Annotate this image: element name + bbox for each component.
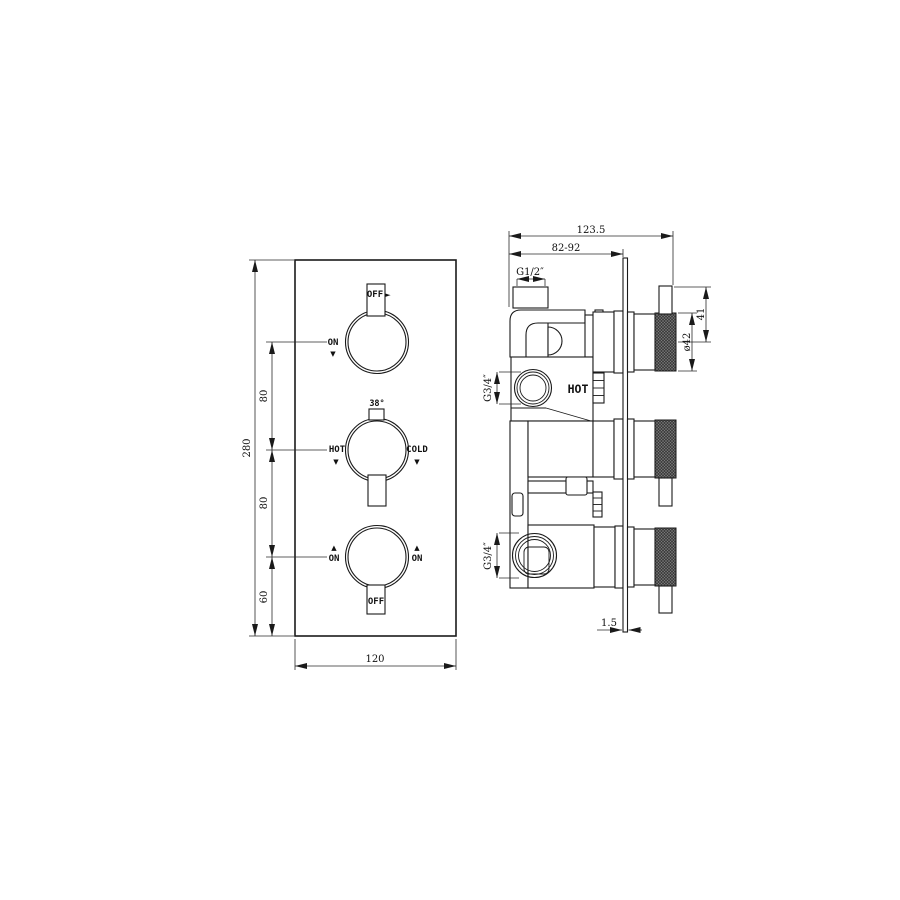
right-triangle-icon: ►: [385, 291, 391, 299]
lever-down: [659, 478, 672, 506]
cold-label: COLD: [406, 445, 428, 455]
knurled-grip: [655, 313, 676, 371]
lever-down: [659, 586, 672, 613]
dim-knob-dia-42: ø42: [682, 333, 693, 352]
knurled-grip: [655, 528, 676, 586]
dim-gap-60-bottom: 60: [259, 591, 270, 604]
knurled-grip: [655, 420, 676, 478]
outlet-thread-top-label: G3/4″: [483, 374, 494, 402]
dim-handle-41: 41: [696, 308, 707, 321]
drawing-canvas: OFF ► ON ▼ 38° HOT ▼ COLD ▼ OFF ▲ ON ▲ O…: [0, 0, 900, 900]
dim-plate-1-5: 1.5: [601, 618, 617, 629]
side-view: HOT: [483, 225, 711, 632]
inlet-port-g12: [513, 287, 548, 308]
knob-middle-handle: [368, 475, 386, 506]
hot-marking: HOT: [568, 382, 589, 396]
faceplate-side: [623, 258, 628, 632]
front-view: OFF ► ON ▼ 38° HOT ▼ COLD ▼ OFF ▲ ON ▲ O…: [242, 260, 456, 670]
inlet-thread-label: G1/2″: [516, 267, 544, 278]
dim-gap-80-top: 80: [259, 390, 270, 403]
side-tab: [512, 493, 523, 516]
lower-valve-block: [528, 525, 594, 588]
knob-middle-side: [628, 419, 677, 506]
cartridge-dome: [548, 327, 562, 355]
middle-valve-block: [528, 421, 593, 477]
temp-38-label: 38°: [369, 399, 384, 409]
knob-top-handle: [367, 284, 385, 316]
lever-up: [659, 286, 672, 314]
knob-bottom-on-right-label: ON: [412, 554, 423, 564]
hot-label: HOT: [329, 445, 346, 455]
dim-height-280: 280: [242, 438, 253, 457]
knob-bottom-off-label: OFF: [368, 597, 384, 607]
knob-top-on-label: ON: [328, 338, 339, 348]
down-triangle-icon: ▼: [414, 458, 420, 466]
knob-bottom-side: [628, 527, 677, 613]
up-triangle-icon: ▲: [331, 544, 337, 552]
knob-middle-tab: [369, 409, 384, 420]
down-triangle-icon: ▼: [333, 458, 339, 466]
outlet-thread-bottom-label: G3/4″: [483, 542, 494, 570]
dim-wall-82-92: 82-92: [552, 243, 581, 254]
ridged-connector-lower: [593, 492, 602, 517]
ridged-connector-upper: [593, 373, 604, 403]
knob-bottom-on-left-label: ON: [329, 554, 340, 564]
valve-body-side: HOT: [510, 287, 623, 588]
up-triangle-icon: ▲: [414, 544, 420, 552]
knob-top-side: [628, 286, 677, 372]
dim-gap-80-mid: 80: [259, 497, 270, 510]
dim-width-120: 120: [365, 654, 384, 665]
technical-drawing-svg: OFF ► ON ▼ 38° HOT ▼ COLD ▼ OFF ▲ ON ▲ O…: [0, 0, 900, 900]
knob-top-off-label: OFF: [367, 290, 383, 300]
pipe-union: [566, 477, 587, 495]
dim-depth-123-5: 123.5: [577, 225, 606, 236]
down-triangle-icon: ▼: [330, 350, 336, 358]
